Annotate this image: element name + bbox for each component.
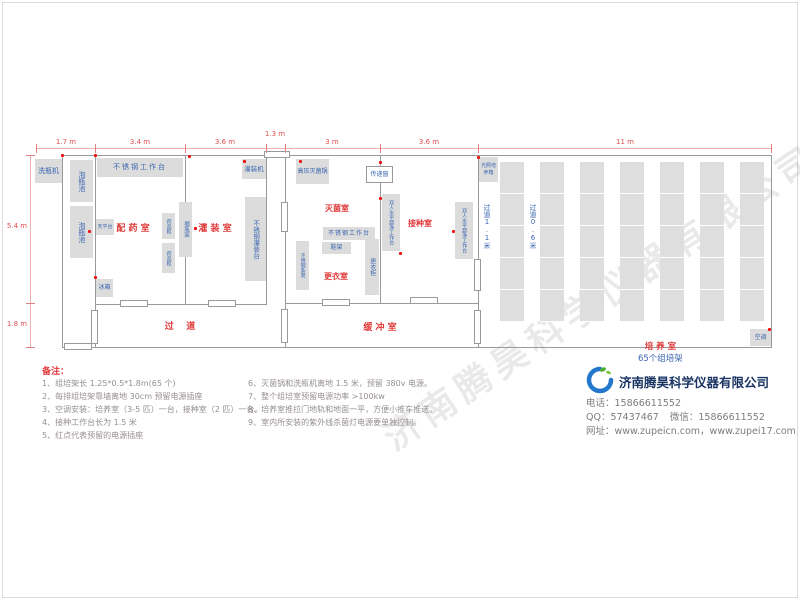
wall-right bbox=[771, 155, 772, 348]
note-item: 1、组培架长 1.25*0.5*1.8m(65 个) bbox=[42, 377, 262, 390]
bottle-washer-block: 洗瓶机 bbox=[35, 159, 62, 183]
outlet-dot bbox=[379, 197, 382, 200]
tissue-culture-rack-column bbox=[700, 162, 724, 322]
outlet-dot bbox=[243, 160, 246, 163]
company-qq-line: QQ：57437467 微信：15866611552 bbox=[586, 409, 765, 423]
wall-left bbox=[62, 155, 63, 348]
cultivation-room-suffix: 65个组培架 bbox=[638, 354, 683, 364]
light-incubator-block: 光照培养箱 bbox=[479, 157, 498, 182]
medicine-cabinet-block-2: 药品柜 bbox=[162, 243, 175, 273]
outlet-dot bbox=[194, 227, 197, 230]
wall-top bbox=[62, 155, 772, 156]
note-item: 9、室内所安装的紫外线杀菌灯电源要单独控制。 bbox=[248, 416, 437, 429]
soak-pool-block-1: 泡瓶池 bbox=[70, 160, 93, 202]
aisle-wide-label: 过道1.1米 bbox=[480, 195, 492, 257]
pass-window-block: 传递窗 bbox=[366, 166, 393, 183]
shoe-rack-block: 鞋架 bbox=[322, 242, 351, 254]
dim-tick bbox=[26, 347, 35, 348]
company-phone-line: 电话：15866611552 bbox=[586, 395, 681, 409]
dimension-line-left bbox=[30, 155, 31, 348]
outlet-dot bbox=[94, 276, 97, 279]
phone-value: 15866611552 bbox=[615, 398, 682, 409]
dim-top-6: 3.6 m bbox=[405, 138, 453, 146]
note-item: 5、红点代表预留的电源插座 bbox=[42, 429, 262, 442]
dim-tick bbox=[380, 144, 381, 153]
door-wash-corridor bbox=[91, 310, 98, 344]
dim-tick bbox=[771, 144, 772, 153]
dim-top-1: 1.7 m bbox=[42, 138, 90, 146]
note-item: 8、培养室推拉门地轨和地面一平，方便小推车推送。 bbox=[248, 403, 437, 416]
qq-value: 57437467 bbox=[610, 412, 658, 423]
locker-block: 更衣柜 bbox=[365, 239, 379, 295]
note-item: 2、每排组培架靠墙离地 30cm 预留电源插座 bbox=[42, 390, 262, 403]
door-changing-buffer bbox=[322, 299, 350, 306]
door-inoculation-buffer bbox=[410, 297, 438, 304]
door-corridor-exit bbox=[64, 343, 92, 350]
dim-tick bbox=[95, 144, 96, 153]
door-top-entry bbox=[264, 151, 290, 158]
wechat-value: 15866611552 bbox=[698, 412, 765, 423]
outlet-dot bbox=[379, 161, 382, 164]
note-item: 6、灭菌锅和洗瓶机离地 1.5 米，预留 380v 电源。 bbox=[248, 377, 437, 390]
ss-bench-block: 不锈钢条凳 bbox=[296, 241, 309, 290]
outlet-dot bbox=[299, 160, 302, 163]
tissue-culture-rack-column bbox=[740, 162, 764, 322]
tissue-culture-rack-column bbox=[620, 162, 644, 322]
company-name: 济南腾昊科学仪器有限公司 bbox=[619, 372, 769, 391]
dim-top-5: 3 m bbox=[308, 138, 356, 146]
notes-title: 备注： bbox=[42, 364, 69, 377]
door-buffer-cultivation bbox=[474, 310, 481, 344]
air-conditioner-block: 空调 bbox=[750, 329, 771, 346]
dim-top-4: 1.3 m bbox=[251, 130, 299, 138]
tissue-culture-rack-column bbox=[580, 162, 604, 322]
ss-filling-table-block: 不锈钢灌装台 bbox=[245, 197, 266, 281]
web-value: www.zupeicn.com，www.zupei17.com bbox=[615, 426, 796, 437]
wechat-label: 微信： bbox=[670, 412, 699, 423]
note-item: 3、空调安装：培养室（3-5 匹）一台，接种室（2 匹）一台。 bbox=[42, 403, 262, 416]
outlet-dot bbox=[61, 154, 64, 157]
corridor-label: 过 道 bbox=[145, 319, 215, 332]
dim-tick bbox=[478, 144, 479, 153]
outlet-dot bbox=[768, 328, 771, 331]
outlet-dot bbox=[399, 252, 402, 255]
buffer-room-label: 缓 冲 室 bbox=[345, 320, 415, 333]
company-logo bbox=[586, 366, 614, 394]
notes-column-2: 6、灭菌锅和洗瓶机离地 1.5 米，预留 380v 电源。 7、整个组培室预留电… bbox=[248, 377, 437, 429]
outlet-dot bbox=[94, 154, 97, 157]
dim-tick bbox=[26, 155, 35, 156]
cultivation-room-name: 培 养 室 bbox=[645, 342, 676, 352]
inoculation-room-label: 接种室 bbox=[398, 218, 442, 229]
web-label: 网址： bbox=[586, 426, 615, 437]
dim-tick bbox=[285, 144, 286, 153]
sterilization-room-label: 灭菌室 bbox=[315, 203, 359, 214]
rack-columns bbox=[500, 162, 766, 322]
door-buffer-left bbox=[281, 309, 288, 343]
dim-top-3: 3.6 m bbox=[201, 138, 249, 146]
tissue-culture-rack-column bbox=[540, 162, 564, 322]
outlet-dot bbox=[452, 230, 455, 233]
dim-top-2: 3.4 m bbox=[116, 138, 164, 146]
wall-filling-vestibule bbox=[266, 155, 267, 305]
door-inoculation-cultivation bbox=[474, 259, 481, 291]
ss-workbench-block-prep: 不锈钢工作台 bbox=[97, 158, 183, 177]
tissue-culture-rack-column bbox=[500, 162, 524, 322]
outlet-dot bbox=[88, 230, 91, 233]
dimension-line-top bbox=[36, 148, 772, 149]
logo-swirl-icon bbox=[586, 366, 614, 394]
door-sterilization-left bbox=[281, 202, 288, 232]
prep-room-label: 配 药 室 bbox=[103, 221, 163, 234]
door-prep-room bbox=[120, 300, 148, 307]
wall-buffer-top bbox=[285, 303, 479, 304]
door-filling-room bbox=[208, 300, 236, 307]
dim-left-2: 1.8 m bbox=[6, 320, 28, 328]
tissue-culture-rack-column bbox=[660, 162, 684, 322]
note-item: 7、整个组培室预留电源功率 >100kw bbox=[248, 390, 437, 403]
clean-bench-block-right: 双人水平超净工作台 bbox=[455, 202, 473, 259]
aisle-narrow-label: 过道0.6米 bbox=[526, 195, 538, 257]
dim-tick bbox=[36, 144, 37, 153]
company-web-line: 网址：www.zupeicn.com，www.zupei17.com bbox=[586, 423, 796, 437]
dim-tick bbox=[26, 303, 35, 304]
dim-tick bbox=[266, 144, 267, 153]
medicine-cabinet-block-1: 药品柜 bbox=[162, 213, 175, 239]
notes-column-1: 1、组培架长 1.25*0.5*1.8m(65 个) 2、每排组培架靠墙离地 3… bbox=[42, 377, 262, 442]
dim-left-1: 5.4 m bbox=[6, 222, 28, 230]
changing-room-label: 更衣室 bbox=[314, 271, 358, 282]
qq-label: QQ： bbox=[586, 412, 610, 423]
outlet-dot bbox=[477, 156, 480, 159]
phone-label: 电话： bbox=[586, 398, 615, 409]
floor-plan-page: 济南腾昊科学仪器有限公司 洗瓶机 泡瓶池 泡瓶池 不锈钢工作台 天平台 冰箱 药… bbox=[0, 0, 800, 600]
outlet-dot bbox=[188, 155, 191, 158]
fridge-block: 冰箱 bbox=[96, 279, 113, 297]
dim-top-7: 11 m bbox=[601, 138, 649, 146]
note-item: 4、接种工作台长为 1.5 米 bbox=[42, 416, 262, 429]
dim-tick bbox=[185, 144, 186, 153]
